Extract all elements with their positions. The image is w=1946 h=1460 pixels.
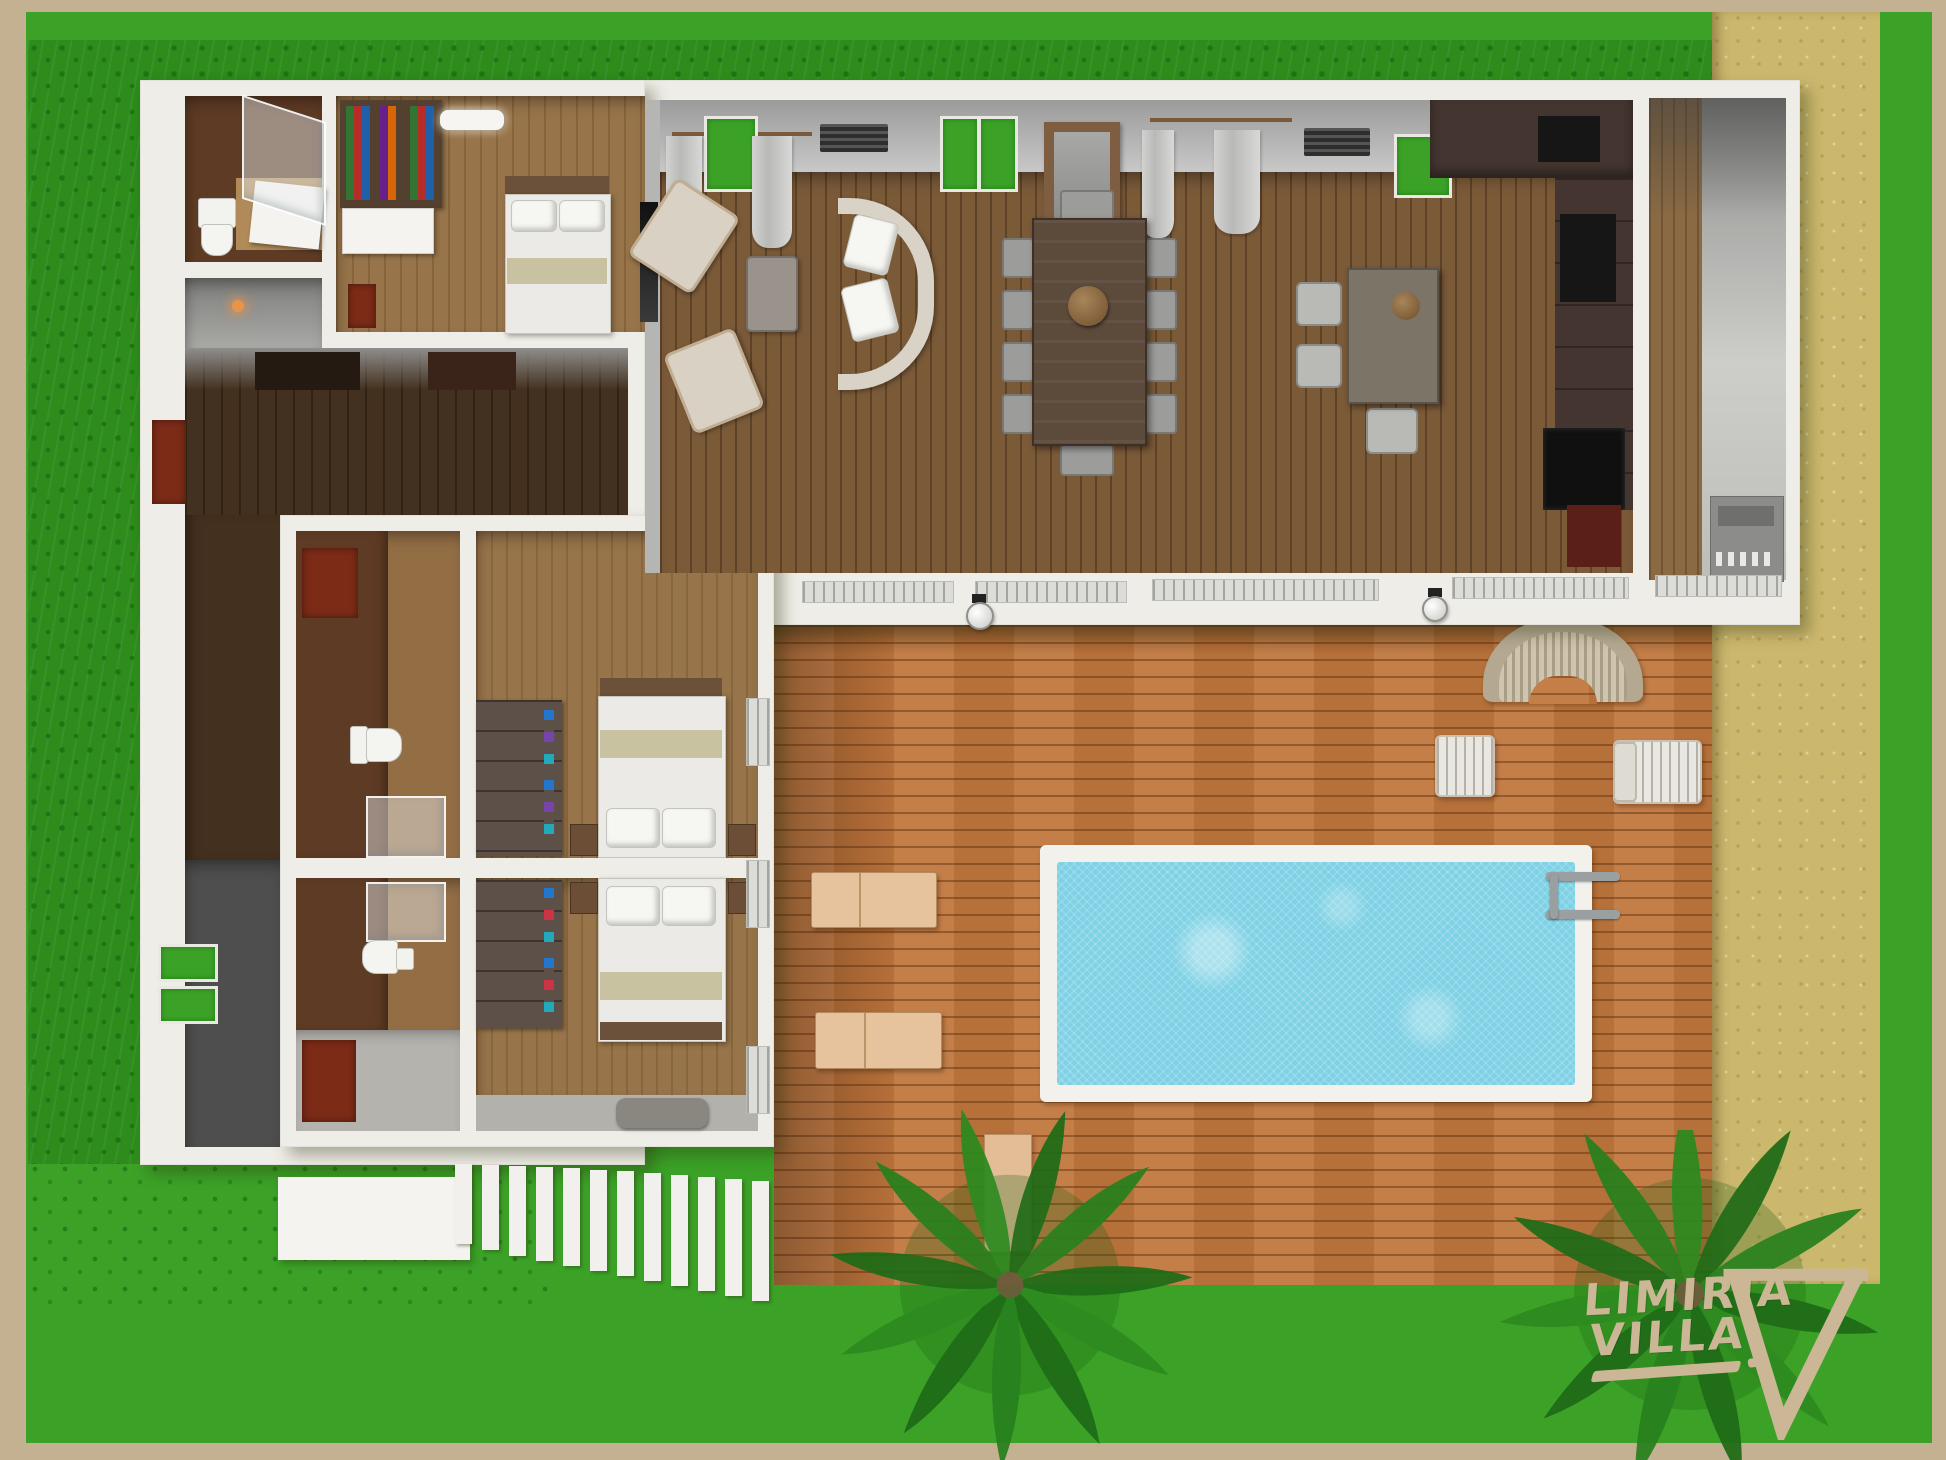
table-centerpiece bbox=[1068, 286, 1108, 326]
kitchen-cabinets-top bbox=[1430, 100, 1633, 178]
louver-step bbox=[563, 1168, 580, 1266]
red-door-west bbox=[152, 420, 186, 504]
oven-black bbox=[1560, 214, 1616, 302]
ac-vent bbox=[820, 124, 888, 152]
louver-step bbox=[509, 1166, 526, 1256]
louver-step bbox=[698, 1177, 715, 1291]
bedroom-divider-wall bbox=[296, 858, 758, 878]
curtain-rod bbox=[1150, 118, 1292, 122]
single-bed-headboard bbox=[505, 176, 609, 194]
doorway-shadow bbox=[428, 352, 516, 390]
sun-lounger-2 bbox=[815, 1012, 942, 1069]
deck-window-band bbox=[1655, 575, 1782, 597]
window-deck bbox=[746, 860, 770, 928]
entry-hall-nook bbox=[185, 278, 322, 348]
bar-table bbox=[1347, 268, 1439, 404]
louver-step bbox=[536, 1167, 553, 1261]
corridor-ceiling-shadow bbox=[1649, 98, 1786, 218]
hedge-strip-top bbox=[28, 40, 1712, 82]
wardrobe-2-items bbox=[544, 888, 554, 1020]
bar-stool bbox=[1296, 282, 1342, 326]
toilet-2-bowl bbox=[366, 728, 402, 762]
deck-window-band bbox=[975, 581, 1127, 603]
deck-window-band bbox=[1152, 579, 1379, 601]
swimming-pool bbox=[1057, 862, 1575, 1085]
bed-1-headboard bbox=[600, 678, 722, 696]
bed-2-pillow bbox=[662, 886, 716, 926]
louver-step bbox=[617, 1171, 634, 1276]
dining-chair bbox=[1145, 238, 1177, 278]
bed-1-runner bbox=[600, 730, 722, 758]
entry-light bbox=[232, 300, 244, 312]
single-bed-pillow bbox=[559, 200, 605, 232]
shower-3-glass bbox=[366, 882, 446, 942]
bedroom-wing-inner-wall bbox=[460, 531, 476, 1131]
kitchen-red-cabinet bbox=[1567, 505, 1621, 567]
dresser bbox=[342, 208, 434, 254]
red-door-bath-1 bbox=[302, 548, 358, 618]
curtain bbox=[1214, 130, 1260, 234]
ac-vent bbox=[1304, 128, 1370, 156]
bed-1-pillow bbox=[662, 808, 716, 848]
window-garden-1 bbox=[158, 944, 218, 982]
nightstand bbox=[728, 824, 756, 856]
louver-step bbox=[752, 1181, 769, 1301]
hedge-strip-left bbox=[28, 40, 142, 1164]
hallway-wall-face bbox=[185, 348, 628, 390]
hallway-left-floor bbox=[185, 515, 280, 860]
nightstand bbox=[570, 882, 598, 914]
single-bed-pillow bbox=[511, 200, 557, 232]
doorway-shadow bbox=[255, 352, 360, 390]
cooktop-black bbox=[1543, 428, 1625, 510]
window-garden-2 bbox=[158, 986, 218, 1024]
coffee-table bbox=[746, 256, 798, 332]
dining-chair bbox=[1002, 394, 1034, 434]
living-west-wall-face bbox=[645, 100, 660, 573]
sun-lounger-1 bbox=[811, 872, 937, 928]
logo-v-mark-icon bbox=[1714, 1260, 1874, 1440]
dining-chair bbox=[1002, 290, 1034, 330]
pool-ladder-step bbox=[1550, 874, 1558, 919]
corridor-wall bbox=[1633, 92, 1649, 621]
bar-bowl bbox=[1392, 292, 1420, 320]
dining-chair bbox=[1145, 290, 1177, 330]
laundry-dials bbox=[1716, 552, 1776, 566]
nightstand bbox=[570, 824, 598, 856]
bed-2-pillow bbox=[606, 886, 660, 926]
louver-step bbox=[725, 1179, 742, 1296]
ceiling-light bbox=[440, 110, 504, 130]
bed-2-footboard bbox=[600, 1022, 722, 1040]
laundry-display bbox=[1718, 506, 1774, 526]
book-spines bbox=[346, 106, 436, 200]
deck-side-table bbox=[1435, 735, 1495, 797]
curtain bbox=[752, 136, 792, 248]
storage-bench bbox=[616, 1098, 708, 1128]
palm-tree-icon bbox=[820, 1110, 1200, 1460]
dining-chair bbox=[1002, 342, 1034, 382]
dining-chair bbox=[1002, 238, 1034, 278]
wall-lamp bbox=[966, 602, 994, 630]
shower-2-glass bbox=[366, 796, 446, 858]
window-garden-living bbox=[940, 116, 980, 192]
white-patio bbox=[278, 1177, 470, 1260]
louver-step bbox=[455, 1164, 472, 1244]
deck-window-band bbox=[1452, 577, 1629, 599]
window-garden-living bbox=[704, 116, 758, 192]
deck-armchair-back bbox=[1613, 742, 1637, 802]
toilet-1-bowl bbox=[201, 224, 233, 256]
louver-step bbox=[644, 1173, 661, 1281]
louver-step bbox=[671, 1175, 688, 1286]
dining-chair bbox=[1145, 394, 1177, 434]
villa-floorplan-scene: LIMIRIA VILLA bbox=[0, 0, 1946, 1460]
single-bed-runner bbox=[507, 258, 607, 284]
villa-logo: LIMIRIA VILLA bbox=[1576, 1262, 1906, 1452]
red-painting bbox=[348, 284, 376, 328]
red-headboard-panel bbox=[302, 1040, 356, 1122]
louver-step bbox=[590, 1170, 607, 1271]
bed-1-pillow bbox=[606, 808, 660, 848]
dining-table bbox=[1032, 218, 1147, 446]
louver-step bbox=[482, 1165, 499, 1250]
toilet-3-tank bbox=[396, 948, 414, 970]
dining-chair bbox=[1060, 444, 1114, 476]
bed-2-runner bbox=[600, 972, 722, 1000]
deck-window-band bbox=[802, 581, 954, 603]
kitchen-hood bbox=[1538, 116, 1600, 162]
wall-lamp bbox=[1422, 596, 1448, 622]
dining-chair bbox=[1145, 342, 1177, 382]
window-garden-living bbox=[978, 116, 1018, 192]
toilet-3-bowl bbox=[362, 940, 398, 974]
window-deck bbox=[746, 1046, 770, 1114]
window-deck bbox=[746, 698, 770, 766]
bar-stool bbox=[1296, 344, 1342, 388]
bar-stool bbox=[1366, 408, 1418, 454]
wardrobe-1-items bbox=[544, 710, 554, 850]
